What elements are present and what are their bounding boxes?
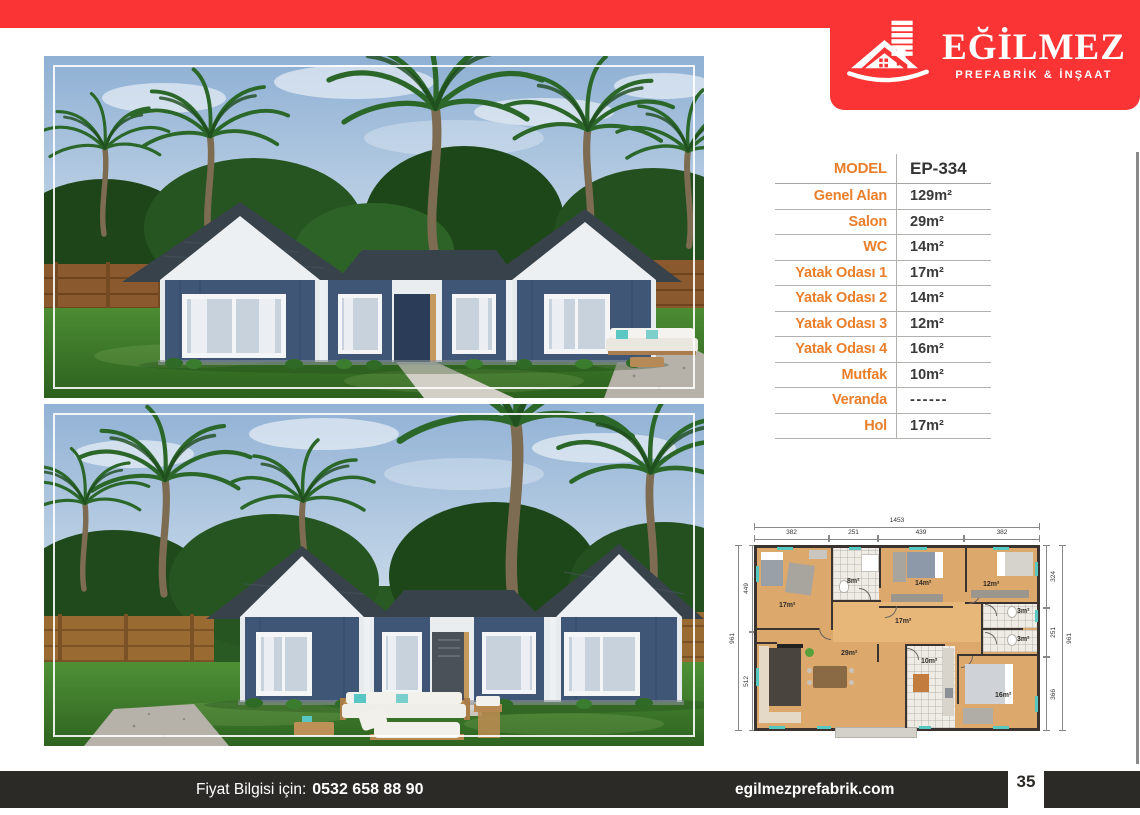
spec-row: Yatak Odası 3 12m² xyxy=(775,312,991,338)
photo-inner-border xyxy=(53,65,695,389)
sofa xyxy=(759,712,801,723)
stove xyxy=(945,688,953,698)
room-label: 14m² xyxy=(915,580,931,587)
room-label: 3m² xyxy=(1017,636,1029,643)
room-label: 17m² xyxy=(895,618,911,625)
page-number-box: 35 xyxy=(1008,769,1044,815)
house-render-top xyxy=(44,56,704,398)
page-number: 35 xyxy=(1008,772,1044,792)
dresser xyxy=(971,590,1029,598)
dining-table xyxy=(813,666,847,688)
catalog-page: EĞİLMEZ PREFABRİK & İNŞAAT xyxy=(0,0,1140,815)
dim-top-1: 382 xyxy=(754,528,829,540)
rug xyxy=(963,708,993,724)
spec-row: Veranda ------ xyxy=(775,388,991,414)
rug xyxy=(785,562,815,595)
brand-subtitle: PREFABRİK & İNŞAAT xyxy=(942,69,1126,81)
spec-label: Yatak Odası 4 xyxy=(775,337,896,362)
spec-value: 14m² xyxy=(896,235,991,260)
floor-plan-drawing: 17m² 8m² 14m² 12m² 17m² 3m² 3m² 29m² 10m… xyxy=(754,545,1040,731)
plant xyxy=(805,648,814,657)
dim-right-total: 961 xyxy=(1062,545,1075,731)
spec-value: 14m² xyxy=(896,286,991,311)
wardrobe xyxy=(809,550,827,559)
photo-inner-border xyxy=(53,413,695,737)
dim-right-1: 324 xyxy=(1046,545,1059,608)
brand-logo: EĞİLMEZ PREFABRİK & İNŞAAT xyxy=(830,0,1140,110)
sink xyxy=(1007,634,1017,646)
spec-label: Veranda xyxy=(775,388,896,413)
spec-label: WC xyxy=(775,235,896,260)
brand-title: EĞİLMEZ xyxy=(942,29,1126,66)
spec-value: 12m² xyxy=(896,312,991,337)
spec-row: Yatak Odası 2 14m² xyxy=(775,286,991,312)
shower xyxy=(861,554,879,572)
spec-value: 129m² xyxy=(896,184,991,209)
spec-label: MODEL xyxy=(775,154,896,183)
tv-unit xyxy=(777,644,803,648)
spec-row: Yatak Odası 4 16m² xyxy=(775,337,991,363)
spec-label: Yatak Odası 1 xyxy=(775,261,896,286)
spec-row-model: MODEL EP-334 xyxy=(775,154,991,184)
house-render-bottom xyxy=(44,404,704,746)
room-label: 17m² xyxy=(779,602,795,609)
footer-bar: Fiyat Bilgisi için:0532 658 88 90 egilme… xyxy=(0,771,1140,808)
kitchen-counter xyxy=(943,648,954,716)
dim-top-4: 382 xyxy=(964,528,1040,540)
spec-label: Genel Alan xyxy=(775,184,896,209)
phone-number: 0532 658 88 90 xyxy=(312,781,423,798)
spec-value: 16m² xyxy=(896,337,991,362)
dim-total-width: 1453 xyxy=(754,516,1040,528)
dim-right-3: 366 xyxy=(1046,657,1059,731)
spec-label: Yatak Odası 2 xyxy=(775,286,896,311)
spec-table: MODEL EP-334 Genel Alan 129m² Salon 29m²… xyxy=(775,154,991,439)
room-label: 12m² xyxy=(983,581,999,588)
dim-left-1: 449 xyxy=(740,545,753,632)
spec-value: 10m² xyxy=(896,363,991,388)
room-label: 3m² xyxy=(1017,608,1029,615)
floor-plan: 1453 382 251 439 382 961 449 512 324 251… xyxy=(718,512,1082,752)
dresser xyxy=(891,594,943,602)
room-label: 8m² xyxy=(847,578,859,585)
spec-label: Salon xyxy=(775,210,896,235)
sofa xyxy=(759,646,769,718)
spec-value: EP-334 xyxy=(896,154,991,183)
brand-text: EĞİLMEZ PREFABRİK & İNŞAAT xyxy=(942,29,1126,81)
toilet xyxy=(1007,606,1017,618)
patio-steps xyxy=(835,727,917,738)
house-building-icon xyxy=(844,16,932,94)
room-label: 29m² xyxy=(841,650,857,657)
spec-row: Genel Alan 129m² xyxy=(775,184,991,210)
dim-left-2: 512 xyxy=(740,632,753,731)
spec-row: Yatak Odası 1 17m² xyxy=(775,261,991,287)
dim-left-total: 961 xyxy=(726,545,739,731)
dim-top-2: 251 xyxy=(829,528,878,540)
dim-top-3: 439 xyxy=(878,528,964,540)
spec-value: ------ xyxy=(896,388,991,413)
spec-row: WC 14m² xyxy=(775,235,991,261)
spec-row: Mutfak 10m² xyxy=(775,363,991,389)
spec-value: 29m² xyxy=(896,210,991,235)
page-edge-line xyxy=(1136,152,1139,764)
kitchen-table xyxy=(913,674,929,692)
room-label: 16m² xyxy=(995,692,1011,699)
price-label: Fiyat Bilgisi için: xyxy=(196,781,306,798)
spec-value: 17m² xyxy=(896,261,991,286)
spec-row: Salon 29m² xyxy=(775,210,991,236)
spec-label: Yatak Odası 3 xyxy=(775,312,896,337)
dim-right-2: 251 xyxy=(1046,608,1059,657)
spec-label: Mutfak xyxy=(775,363,896,388)
room-label: 10m² xyxy=(921,658,937,665)
website-text: egilmezprefabrik.com xyxy=(735,781,894,799)
spec-label: Hol xyxy=(775,414,896,439)
spec-value: 17m² xyxy=(896,414,991,439)
price-info: Fiyat Bilgisi için:0532 658 88 90 xyxy=(196,781,423,799)
rug xyxy=(893,552,906,582)
spec-row: Hol 17m² xyxy=(775,414,991,440)
